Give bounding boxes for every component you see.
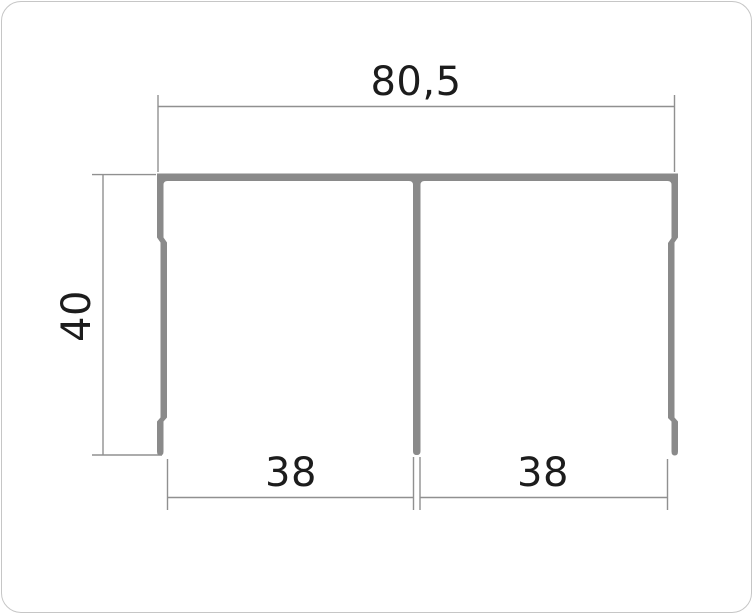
dim-label-overall-height: 40 bbox=[54, 290, 100, 342]
dim-label-overall-width: 80,5 bbox=[370, 59, 461, 105]
dim-overall-height bbox=[92, 175, 162, 455]
dim-label-left-channel: 38 bbox=[265, 450, 317, 496]
screenshot-stage: 80,5 40 38 38 bbox=[0, 0, 755, 616]
dim-overall-width bbox=[158, 95, 675, 172]
dimension-lines bbox=[92, 95, 675, 510]
dim-label-right-channel: 38 bbox=[517, 450, 569, 496]
profile-shape bbox=[157, 174, 678, 456]
profile-drawing: 80,5 40 38 38 bbox=[0, 0, 755, 616]
